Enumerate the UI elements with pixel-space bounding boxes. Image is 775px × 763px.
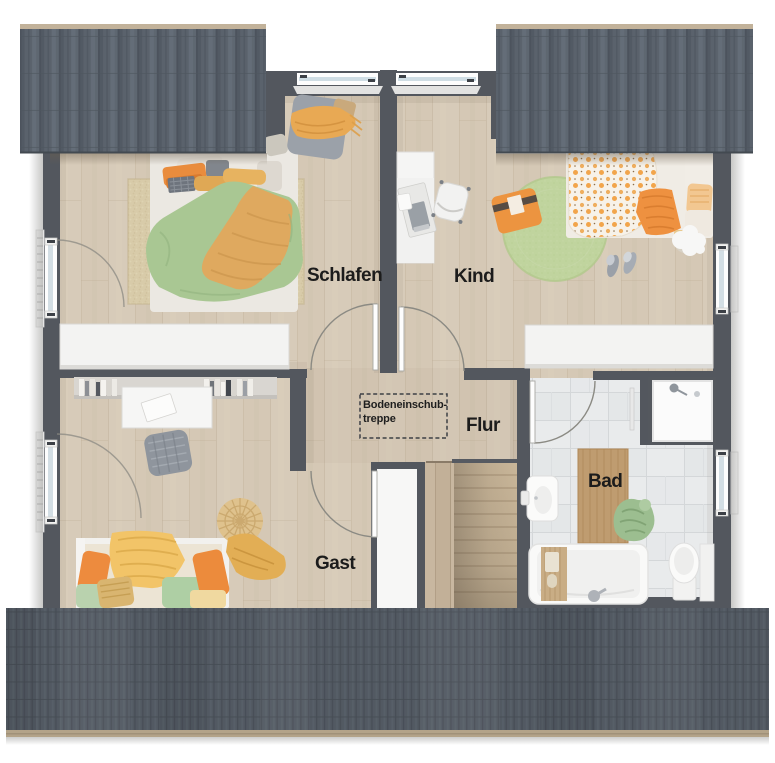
svg-text:Gast: Gast [315,553,356,574]
svg-text:Bodeneinschub-: Bodeneinschub- [363,399,448,411]
svg-text:Bad: Bad [588,471,622,492]
svg-text:Schlafen: Schlafen [307,265,382,286]
svg-text:Kind: Kind [454,266,494,287]
svg-text:treppe: treppe [363,413,396,425]
svg-text:Flur: Flur [466,415,501,436]
